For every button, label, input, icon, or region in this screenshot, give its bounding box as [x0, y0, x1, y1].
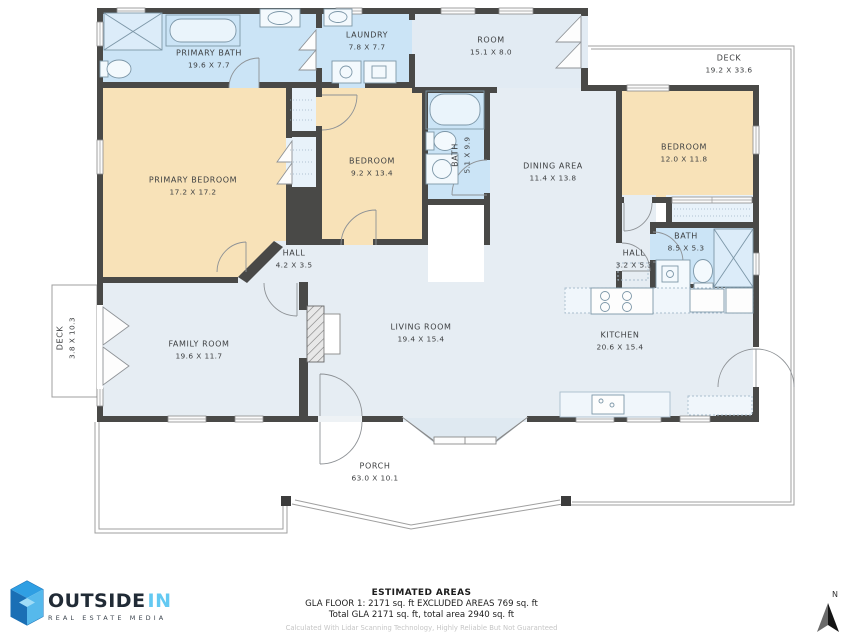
floorplan-graphic: [0, 0, 843, 632]
fireplace: [307, 306, 340, 362]
floorplan-page: PRIMARY BATH19.6 X 7.7 LAUNDRY7.8 X 7.7 …: [0, 0, 843, 632]
room-label-bedroom-right: BEDROOM12.0 X 11.8: [660, 141, 707, 164]
estimated-areas-line1: GLA FLOOR 1: 2171 sq. ft EXCLUDED AREAS …: [0, 599, 843, 609]
room-label-primary-bedroom: PRIMARY BEDROOM17.2 X 17.2: [149, 174, 237, 197]
shower-primary: [104, 13, 162, 50]
room-label-porch: PORCH63.0 X 10.1: [351, 460, 398, 483]
sink-primary: [260, 9, 300, 27]
room-label-room: ROOM15.1 X 8.0: [470, 34, 512, 57]
porch-posts: [281, 496, 571, 506]
room-label-laundry: LAUNDRY7.8 X 7.7: [346, 29, 388, 52]
room-label-bath-right: BATH8.5 X 5.3: [668, 230, 705, 253]
bathtub-primary: [166, 15, 240, 46]
room-label-bedroom-middle: BEDROOM9.2 X 13.4: [349, 155, 395, 178]
room-label-kitchen: KITCHEN20.6 X 15.4: [596, 329, 643, 352]
room-label-deck-left: DECK3.8 X 10.3: [54, 317, 77, 359]
room-label-living-room: LIVING ROOM19.4 X 15.4: [390, 321, 451, 344]
toilet-primary: [100, 60, 131, 78]
room-label-bath-middle: BATH5.1 X 9.9: [449, 137, 472, 174]
room-label-dining-area: DINING AREA11.4 X 13.8: [523, 160, 583, 183]
room-label-hall-center: HALL4.2 X 3.5: [276, 247, 313, 270]
room-label-hall-right: HALL3.2 X 5.3: [616, 247, 653, 270]
north-label: N: [824, 590, 843, 599]
disclaimer-text: Calculated With Lidar Scanning Technolog…: [0, 624, 843, 632]
room-label-family-room: FAMILY ROOM19.6 X 11.7: [168, 338, 229, 361]
room-label-deck-right: DECK19.2 X 33.6: [705, 52, 752, 75]
estimated-areas-title: ESTIMATED AREAS: [0, 588, 843, 598]
room-label-primary-bath: PRIMARY BATH19.6 X 7.7: [176, 47, 242, 70]
estimated-areas-line2: Total GLA 2171 sq. ft, total area 2940 s…: [0, 610, 843, 620]
